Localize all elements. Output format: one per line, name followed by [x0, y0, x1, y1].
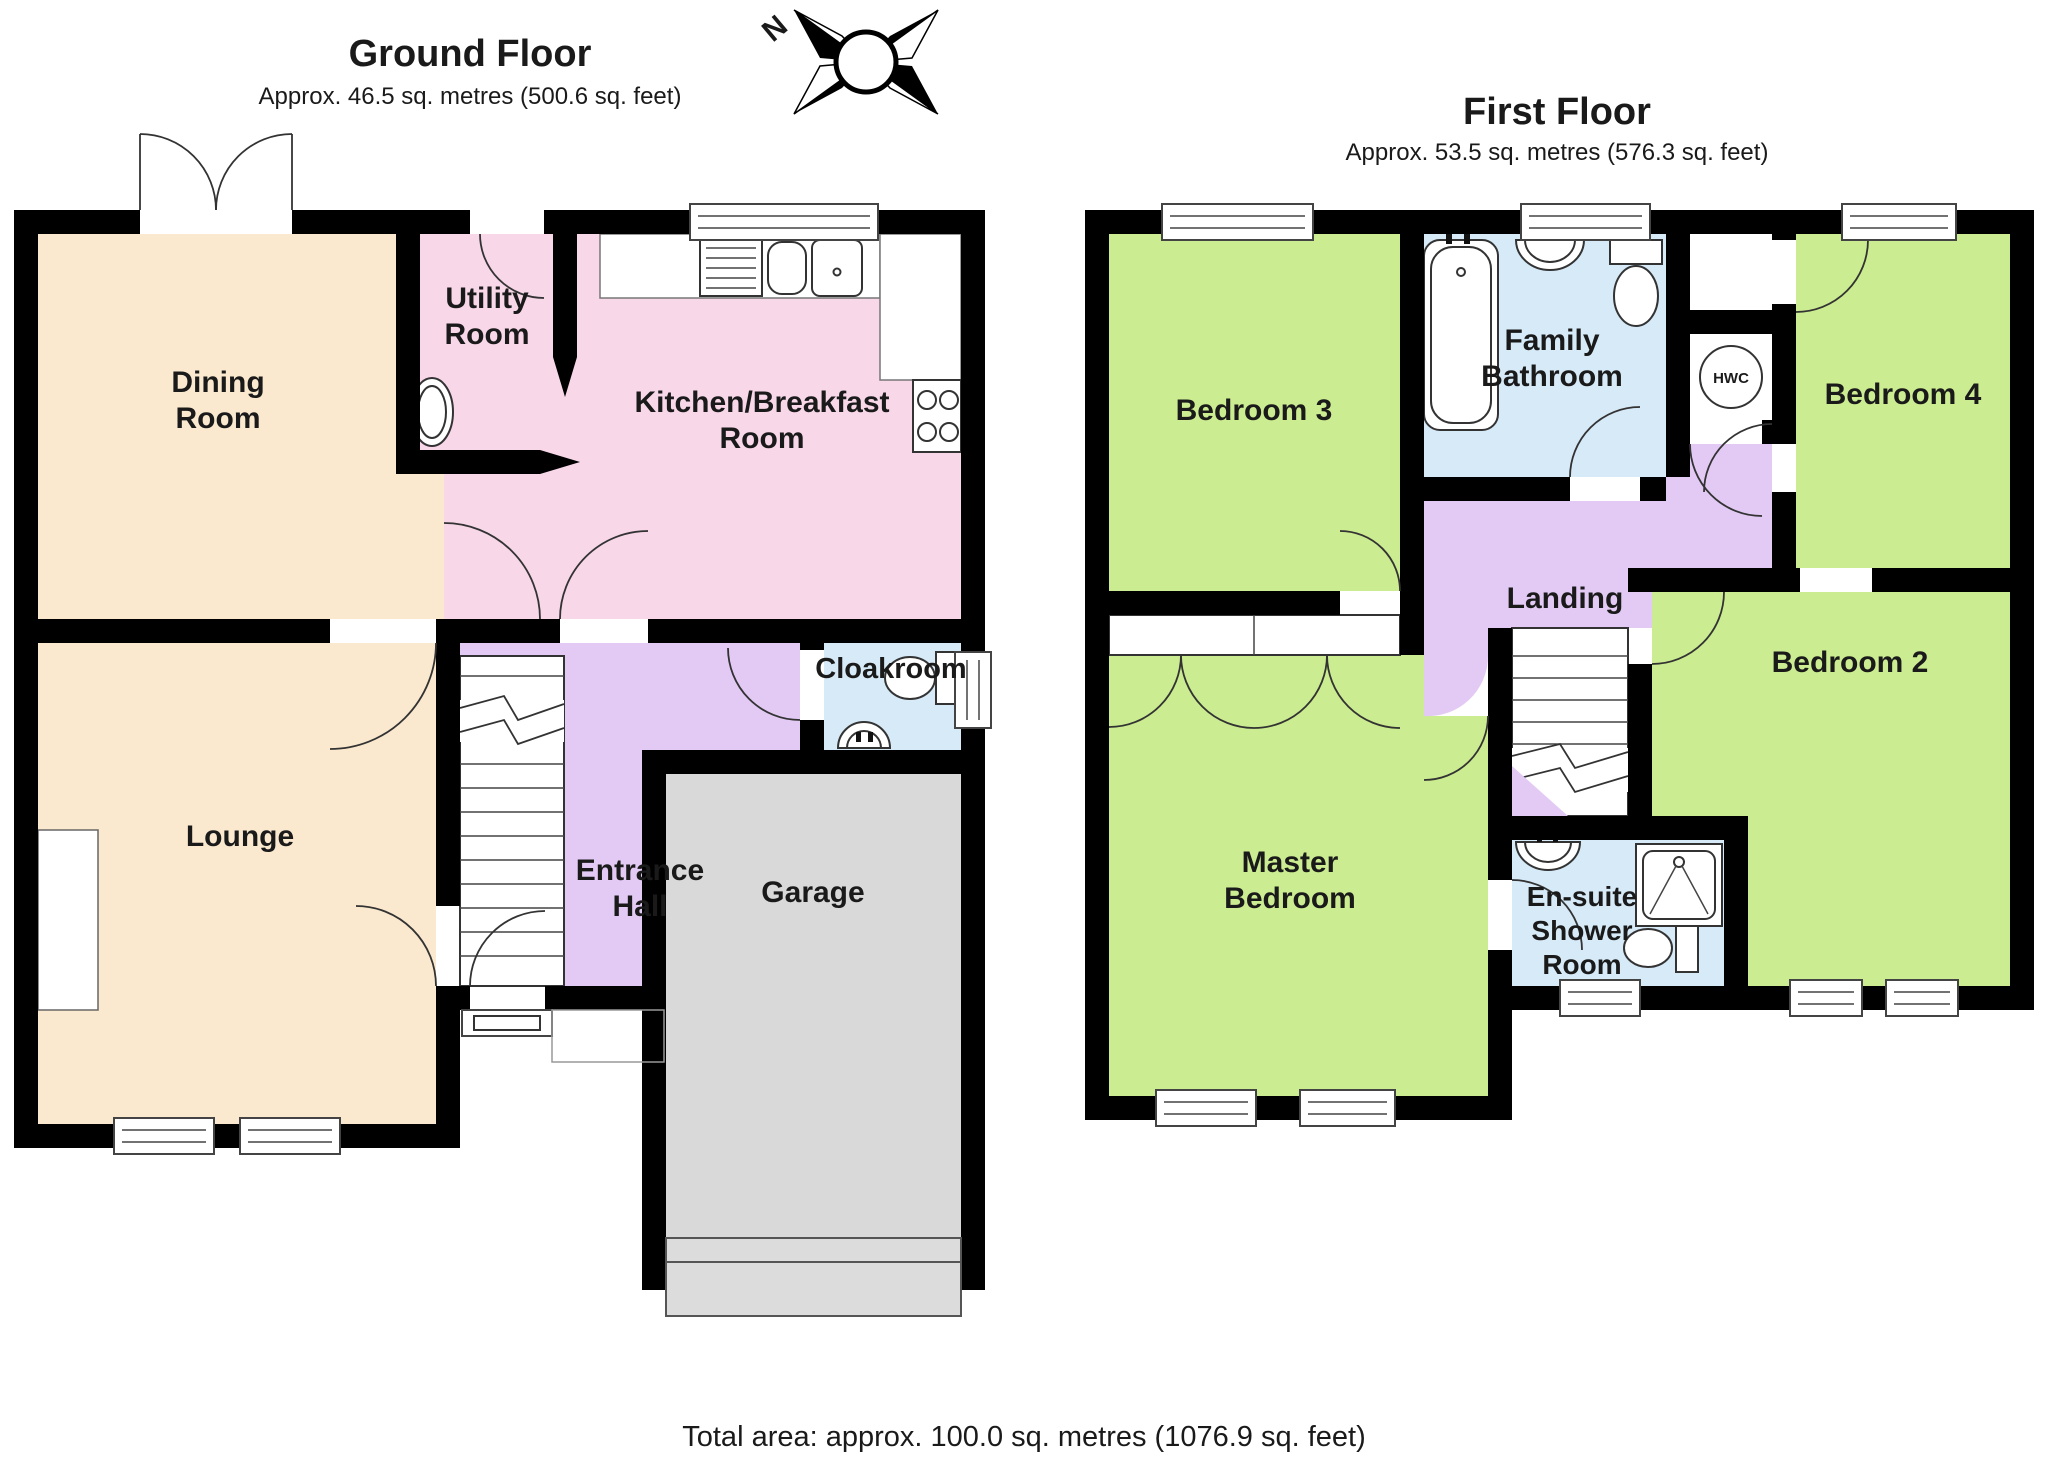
first-floor-title: First Floor [1463, 91, 1651, 133]
kitchen-sink-bowl1 [768, 242, 806, 294]
label-utility-1: Utility [445, 282, 529, 315]
label-bedroom4: Bedroom 4 [1825, 378, 1982, 411]
label-kitchen-1: Kitchen/Breakfast [634, 386, 889, 419]
window-bedroom2-1 [1790, 980, 1862, 1016]
window-lounge-1 [114, 1118, 214, 1154]
label-bathroom-2: Bathroom [1481, 360, 1623, 393]
window-ensuite [1560, 980, 1640, 1016]
label-ensuite-2: Shower [1531, 915, 1632, 946]
room-garage [666, 774, 961, 1266]
total-area-text: Total area: approx. 100.0 sq. metres (10… [682, 1421, 1366, 1453]
compass-north-label: N [756, 9, 794, 48]
label-master-2: Bedroom [1224, 882, 1356, 915]
label-cloakroom: Cloakroom [815, 653, 966, 685]
label-master-1: Master [1242, 846, 1339, 879]
stairs-first [1512, 628, 1628, 816]
label-bedroom2: Bedroom 2 [1772, 646, 1929, 679]
label-dining-1: Dining [171, 366, 264, 399]
label-landing: Landing [1507, 582, 1624, 615]
window-lounge-2 [240, 1118, 340, 1154]
toilet-cistern-ensuite [1676, 926, 1698, 972]
floorplan-svg: HWC [0, 0, 2048, 1458]
cloakroom-tap1 [856, 732, 861, 742]
stairs-ground [460, 656, 564, 986]
front-door-step [462, 1010, 552, 1036]
window-bedroom2-2 [1886, 980, 1958, 1016]
room-landing-main [1424, 501, 1772, 568]
compass-icon: N [756, 9, 938, 114]
label-lounge: Lounge [186, 820, 294, 853]
label-hall-1: Entrance [576, 854, 704, 887]
patio-door-arc-right [216, 134, 292, 210]
hwc-label: HWC [1713, 370, 1749, 387]
label-ensuite-3: Room [1542, 949, 1621, 980]
patio-door-arc-left [140, 134, 216, 210]
ground-floor-subtitle: Approx. 46.5 sq. metres (500.6 sq. feet) [259, 83, 682, 110]
label-utility-2: Room [445, 318, 530, 351]
floorplan-page: HWC [0, 0, 2048, 1458]
label-garage: Garage [761, 876, 864, 909]
label-hall-2: Hall [612, 890, 667, 923]
label-bedroom3: Bedroom 3 [1176, 394, 1333, 427]
hwc-cylinder: HWC [1700, 346, 1762, 408]
window-bedroom3 [1162, 204, 1313, 240]
label-ensuite-1: En-suite [1527, 881, 1637, 912]
kitchen-counter-right [880, 234, 961, 380]
first-floor-subtitle: Approx. 53.5 sq. metres (576.3 sq. feet) [1346, 139, 1769, 166]
label-bathroom-1: Family [1504, 324, 1599, 357]
toilet-cistern-bathroom [1610, 240, 1662, 264]
label-kitchen-2: Room [720, 422, 805, 455]
room-landing-left-arm [1424, 628, 1488, 716]
window-bedroom4 [1842, 204, 1956, 240]
toilet-bowl-bathroom [1614, 266, 1658, 326]
window-master-1 [1156, 1090, 1256, 1126]
garage-door [666, 1238, 961, 1316]
fireplace-recess [38, 830, 98, 1010]
window-bathroom [1521, 204, 1650, 240]
cloakroom-tap2 [868, 732, 873, 742]
stairs-ground-break-mask [460, 700, 564, 742]
hob-icon [913, 380, 961, 452]
ground-floor-title: Ground Floor [349, 33, 592, 75]
window-master-2 [1300, 1090, 1395, 1126]
window-kitchen [690, 204, 878, 240]
label-dining-2: Room [176, 402, 261, 435]
